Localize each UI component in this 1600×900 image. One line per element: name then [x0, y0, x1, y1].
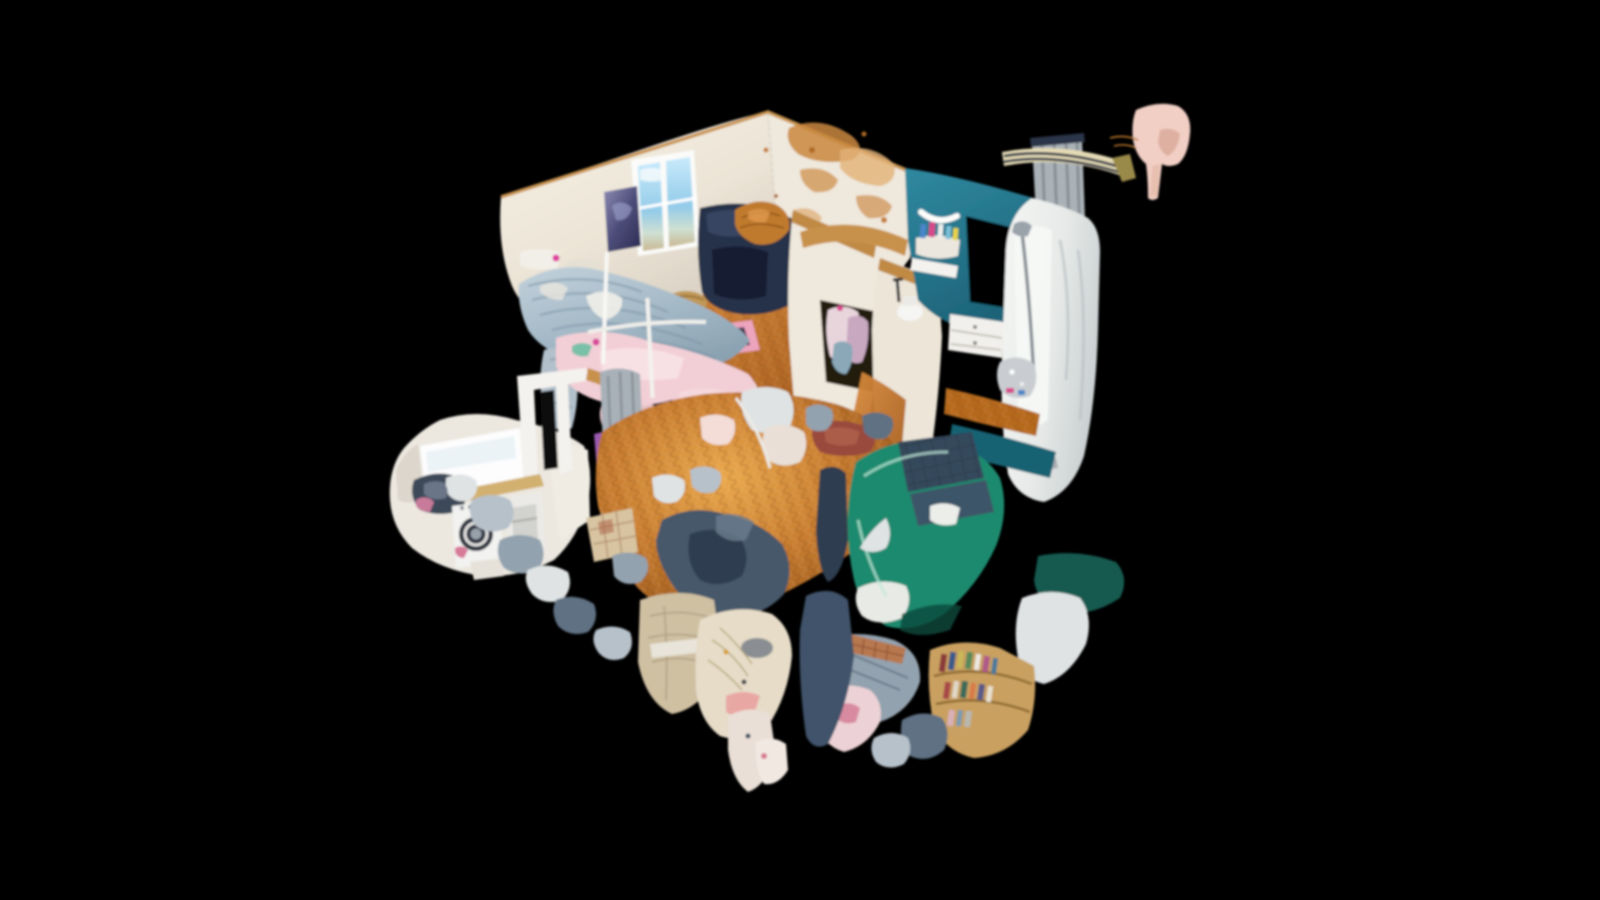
mesh-fragment [470, 495, 514, 532]
sofa-throw-2 [930, 503, 960, 525]
mesh-fragment [593, 626, 632, 660]
mesh-fragment [553, 597, 596, 634]
scan-mesh [390, 104, 1190, 792]
mesh-fragment [816, 467, 848, 582]
bedroom-window [631, 150, 700, 256]
dollhouse-viewport[interactable] [0, 0, 1600, 900]
mesh-fragment [526, 565, 570, 602]
floating-fragment [1110, 104, 1190, 200]
galaxy-poster [604, 186, 641, 252]
dollhouse-scan [0, 0, 1600, 900]
mesh-fragment [871, 733, 910, 768]
mesh-fragment [612, 552, 648, 584]
foil-fragment [997, 357, 1036, 398]
red-rug-highlight [824, 427, 860, 445]
